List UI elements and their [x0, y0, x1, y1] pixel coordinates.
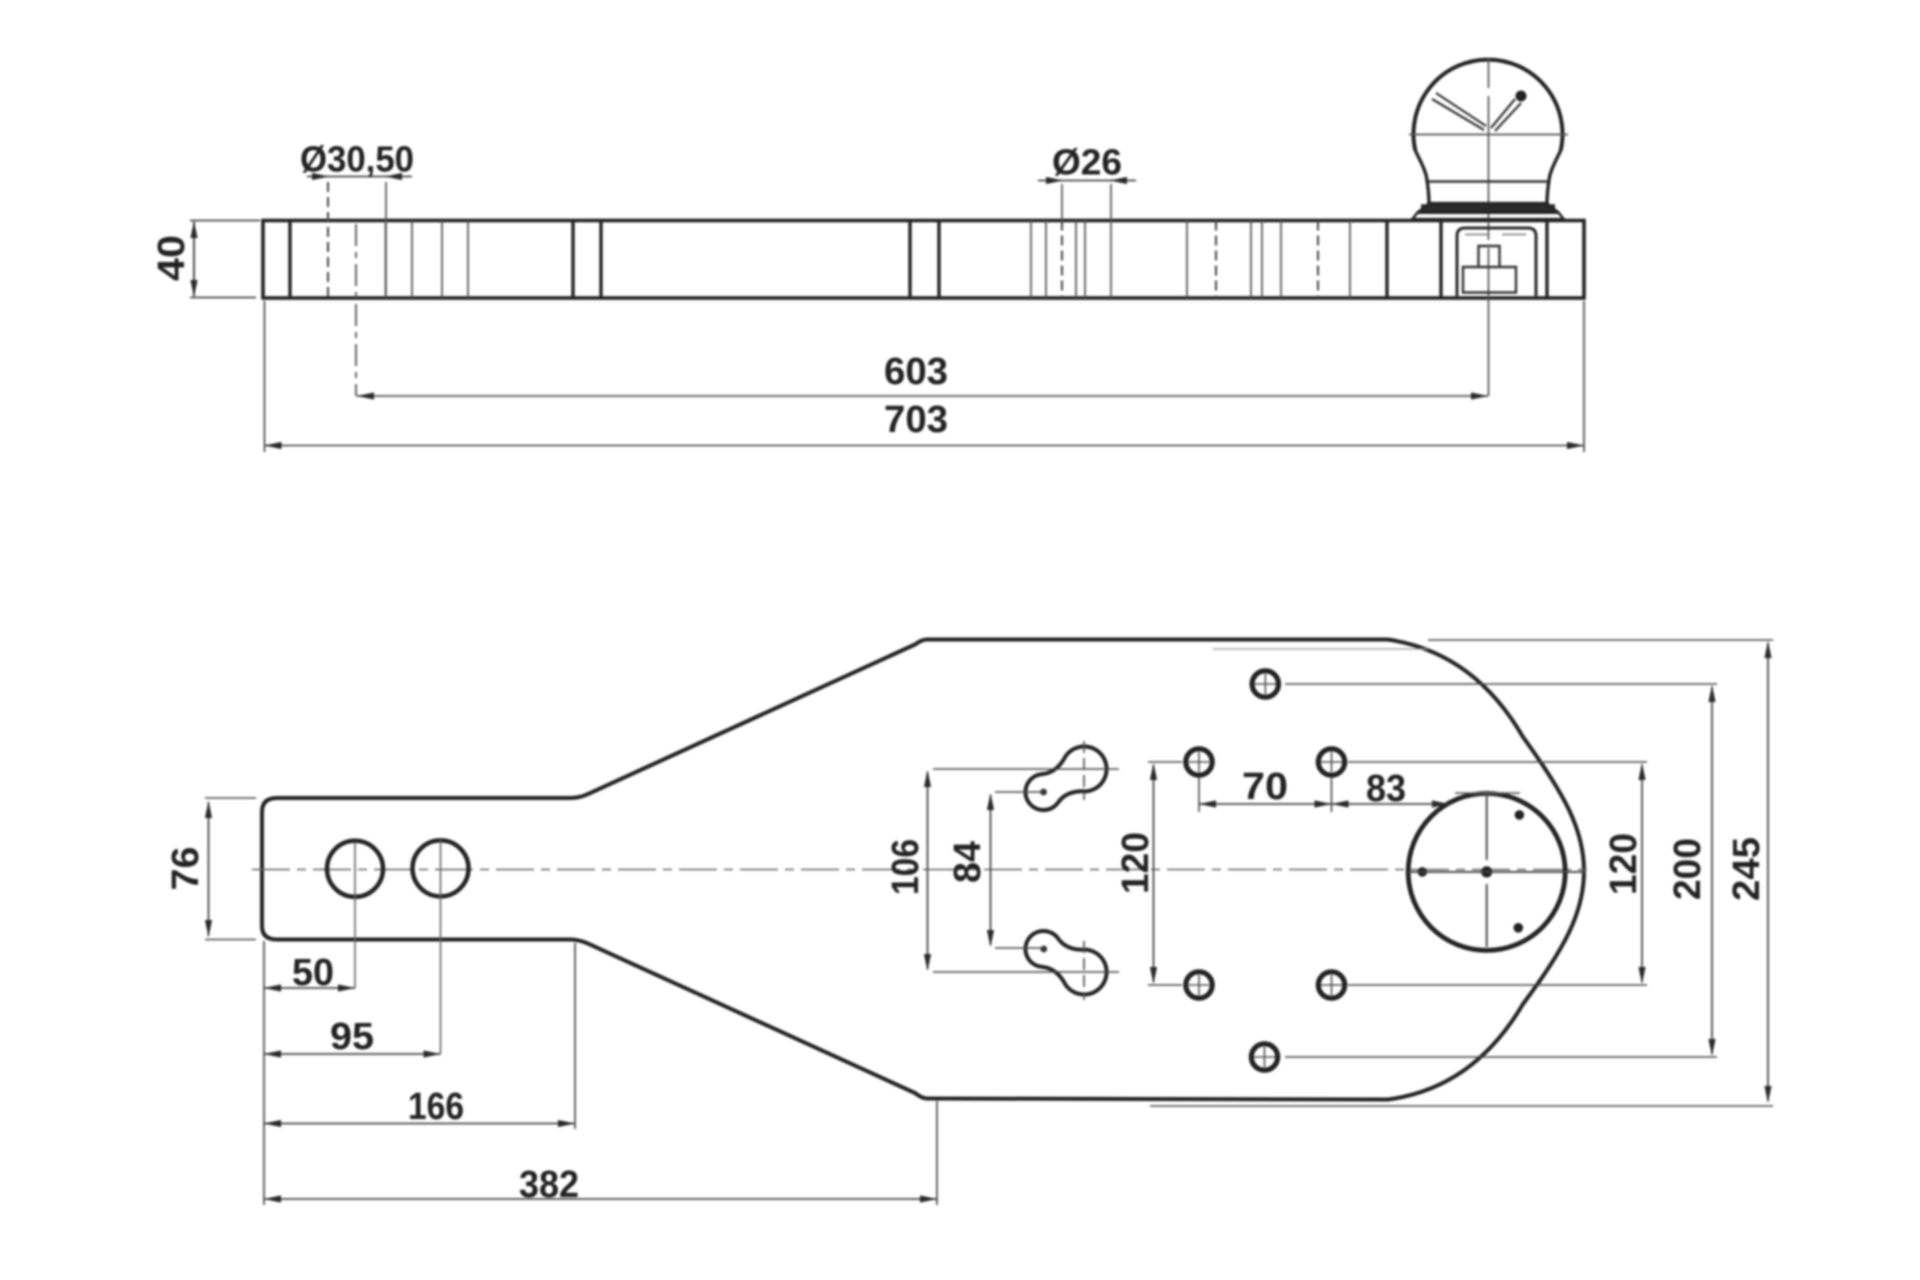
svg-text:382: 382 — [519, 1164, 579, 1206]
svg-text:50: 50 — [292, 952, 334, 994]
svg-text:106: 106 — [885, 839, 927, 895]
svg-text:83: 83 — [1366, 768, 1406, 810]
svg-text:Ø26: Ø26 — [1052, 142, 1122, 183]
svg-text:84: 84 — [947, 841, 989, 883]
svg-text:40: 40 — [151, 235, 193, 281]
svg-text:245: 245 — [1726, 837, 1768, 901]
svg-text:200: 200 — [1667, 838, 1709, 900]
svg-text:703: 703 — [884, 399, 948, 441]
svg-text:166: 166 — [408, 1086, 464, 1128]
svg-text:120: 120 — [1603, 833, 1645, 895]
svg-text:120: 120 — [1115, 832, 1157, 894]
svg-text:95: 95 — [330, 1016, 374, 1058]
svg-text:70: 70 — [1242, 766, 1288, 808]
svg-text:76: 76 — [165, 847, 207, 891]
svg-text:Ø30,50: Ø30,50 — [300, 139, 414, 180]
svg-text:603: 603 — [884, 351, 948, 393]
